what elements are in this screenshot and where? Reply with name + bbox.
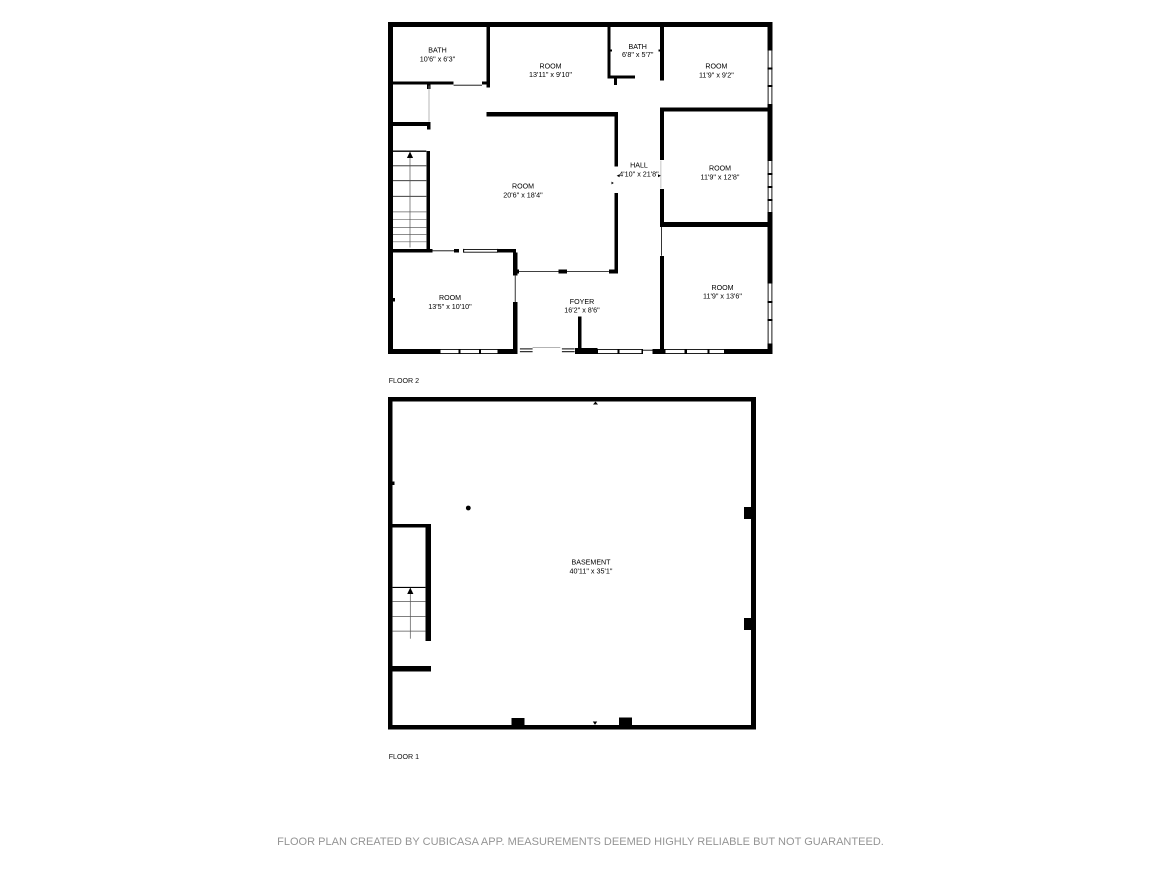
svg-text:BATH: BATH (428, 47, 446, 55)
svg-text:ROOM: ROOM (439, 294, 461, 302)
svg-text:FLOOR 2: FLOOR 2 (389, 377, 419, 385)
svg-text:BASEMENT: BASEMENT (571, 559, 611, 567)
svg-text:ROOM: ROOM (512, 183, 534, 191)
svg-text:4'10" x 21'8": 4'10" x 21'8" (619, 170, 659, 179)
svg-text:13'11" x 9'10": 13'11" x 9'10" (529, 70, 572, 79)
svg-text:40'11" x 35'1": 40'11" x 35'1" (570, 567, 613, 576)
svg-text:HALL: HALL (630, 162, 648, 170)
svg-text:11'9" x 12'8": 11'9" x 12'8" (701, 173, 740, 182)
svg-text:11'9" x 13'6": 11'9" x 13'6" (703, 292, 742, 301)
svg-text:ROOM: ROOM (705, 63, 727, 71)
svg-text:FLOOR PLAN CREATED BY CUBICASA: FLOOR PLAN CREATED BY CUBICASA APP. MEAS… (277, 836, 884, 848)
svg-text:ROOM: ROOM (709, 165, 731, 173)
svg-text:16'2" x 8'6": 16'2" x 8'6" (564, 306, 600, 315)
svg-text:13'5" x 10'10": 13'5" x 10'10" (428, 302, 472, 311)
svg-text:11'9" x 9'2": 11'9" x 9'2" (699, 71, 734, 80)
svg-text:20'6" x 18'4": 20'6" x 18'4" (503, 191, 543, 200)
svg-text:6'8" x 5'7": 6'8" x 5'7" (622, 50, 654, 59)
svg-text:10'6" x 6'3": 10'6" x 6'3" (420, 55, 456, 64)
svg-text:FLOOR 1: FLOOR 1 (389, 753, 419, 761)
